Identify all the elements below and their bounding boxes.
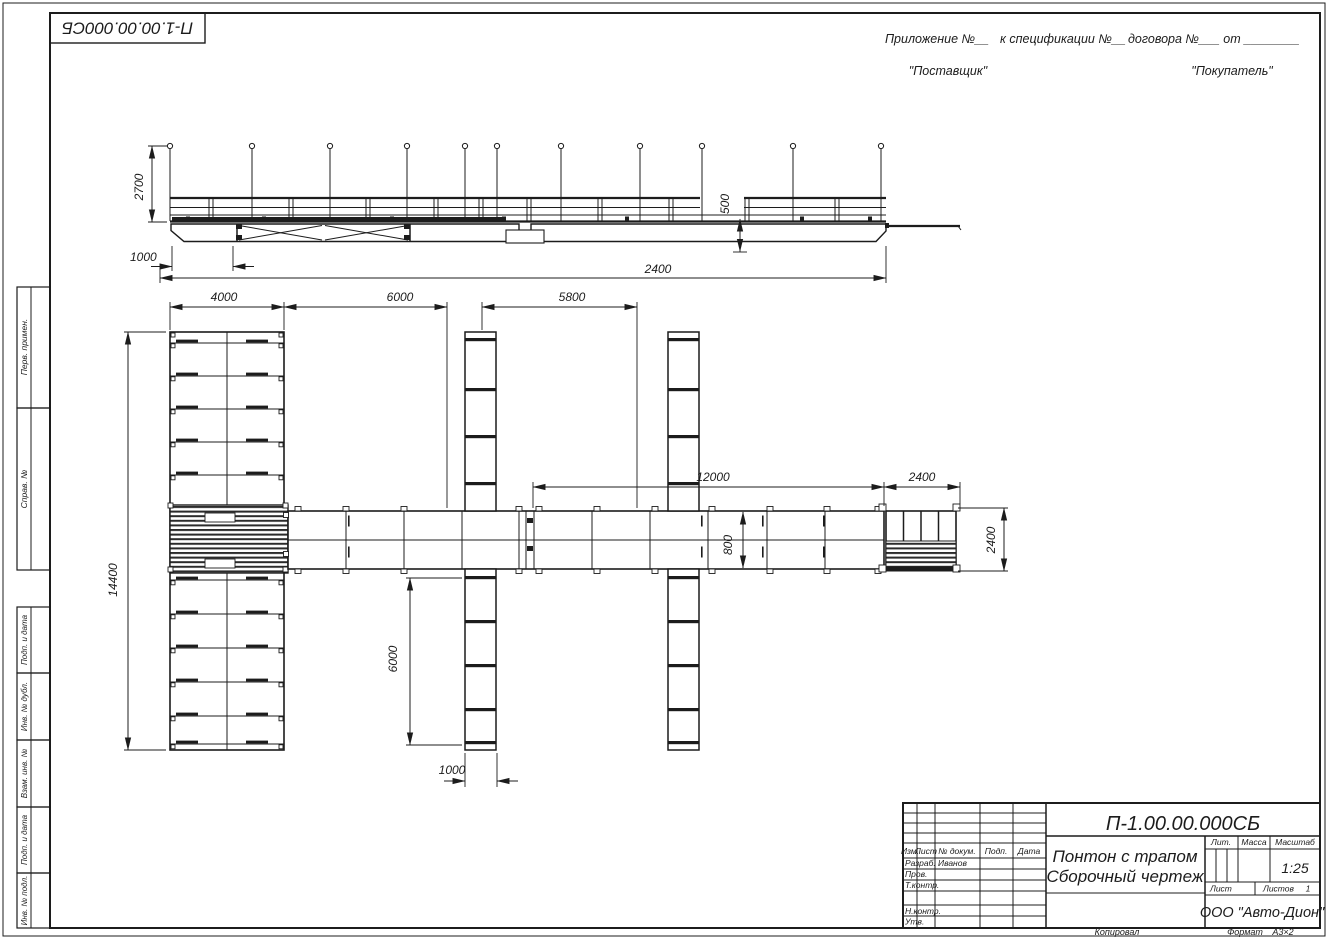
tb-sheets-value: 1 — [1306, 884, 1311, 894]
side-stamps: Перв. примен. Справ. № Подп. и дата Инв.… — [17, 287, 50, 928]
dim-2400-plan-h-label: 2400 — [984, 526, 998, 554]
tb-row-tkontr: Т.контр. — [905, 880, 939, 890]
tb-title-line2: Сборочный чертеж — [1046, 867, 1204, 886]
drawing-sheet: П-1.00.00.000СБ Приложение №__ к специфи… — [0, 0, 1328, 939]
footer-format-value: А3×2 — [1271, 927, 1293, 937]
doc-code-box: П-1.00.00.000СБ — [50, 13, 205, 43]
tb-col-list: Лист — [914, 846, 937, 856]
stamp-podp-data-1: Подп. и дата — [20, 614, 29, 665]
tb-scale-label: Масштаб — [1275, 837, 1316, 847]
appendix-note: Приложение №__ к спецификации №__ догово… — [885, 32, 1300, 78]
dim-4000-label: 4000 — [211, 290, 238, 304]
plan-view — [168, 332, 960, 750]
tb-company: ООО "Авто-Дион" — [1200, 905, 1325, 921]
dim-1000-pier-label: 1000 — [439, 763, 466, 777]
buyer-label: "Покупатель" — [1191, 64, 1273, 78]
dim-1000-side-label: 1000 — [130, 250, 157, 264]
contract-label: договора №___ от ________ — [1128, 32, 1300, 46]
supplier-label: "Поставщик" — [909, 64, 988, 78]
footer-format-label: Формат — [1227, 927, 1263, 937]
dim-2700-label: 2700 — [132, 173, 146, 201]
dim-2400-side-label: 2400 — [644, 262, 672, 276]
tb-col-data: Дата — [1017, 846, 1041, 856]
tb-row-utv: Утв. — [904, 917, 924, 927]
doc-code-rotated: П-1.00.00.000СБ — [62, 19, 193, 38]
dim-14400-label: 14400 — [106, 563, 120, 597]
dim-2400-plan-w-label: 2400 — [908, 470, 936, 484]
dim-500-label: 500 — [718, 194, 732, 214]
ramp-hatch — [168, 503, 288, 573]
stamp-inv-podl: Инв. № подл. — [20, 876, 29, 926]
tb-row-razrab: Разраб. — [905, 858, 936, 868]
stamp-vzam-inv: Взам. инв. № — [20, 748, 29, 798]
title-block: Изм. Лист № докум. Подп. Дата Разраб. Ив… — [901, 803, 1325, 928]
tb-row-prov: Пров. — [905, 869, 927, 879]
dim-6000-pier-label: 6000 — [386, 645, 400, 672]
dim-6000-label: 6000 — [387, 290, 414, 304]
spec-label: к спецификации №__ — [1000, 32, 1126, 46]
elevation-view — [167, 143, 961, 243]
stamp-perv-primen: Перв. примен. — [19, 319, 29, 376]
end-platform — [879, 504, 960, 572]
tb-developer-name: Иванов — [938, 858, 967, 868]
tb-mass-label: Масса — [1241, 837, 1266, 847]
tb-sheets-label: Листов — [1262, 884, 1295, 894]
tb-sheet-label: Лист — [1209, 884, 1232, 894]
tb-scale-value: 1:25 — [1281, 860, 1308, 876]
stamp-sprav-no: Справ. № — [19, 470, 29, 509]
tb-col-doc: № докум. — [938, 846, 975, 856]
drawing-canvas: П-1.00.00.000СБ Приложение №__ к специфи… — [0, 0, 1328, 939]
tb-col-podp: Подп. — [985, 846, 1008, 856]
walkway — [284, 507, 885, 574]
tb-lit-label: Лит. — [1210, 837, 1231, 847]
tb-doc-code: П-1.00.00.000СБ — [1106, 813, 1260, 835]
stamp-podp-data-2: Подп. и дата — [20, 814, 29, 865]
dim-5800-label: 5800 — [559, 290, 586, 304]
appendix-label: Приложение №__ — [885, 32, 989, 46]
tb-row-nkontr: Н.контр. — [905, 906, 941, 916]
dim-800-label: 800 — [721, 535, 735, 555]
stamp-inv-dubl: Инв. № дубл. — [20, 682, 29, 731]
footer-copied: Копировал — [1095, 927, 1140, 937]
tb-title-line1: Понтон с трапом — [1052, 847, 1197, 866]
dim-12000-label: 12000 — [696, 470, 730, 484]
